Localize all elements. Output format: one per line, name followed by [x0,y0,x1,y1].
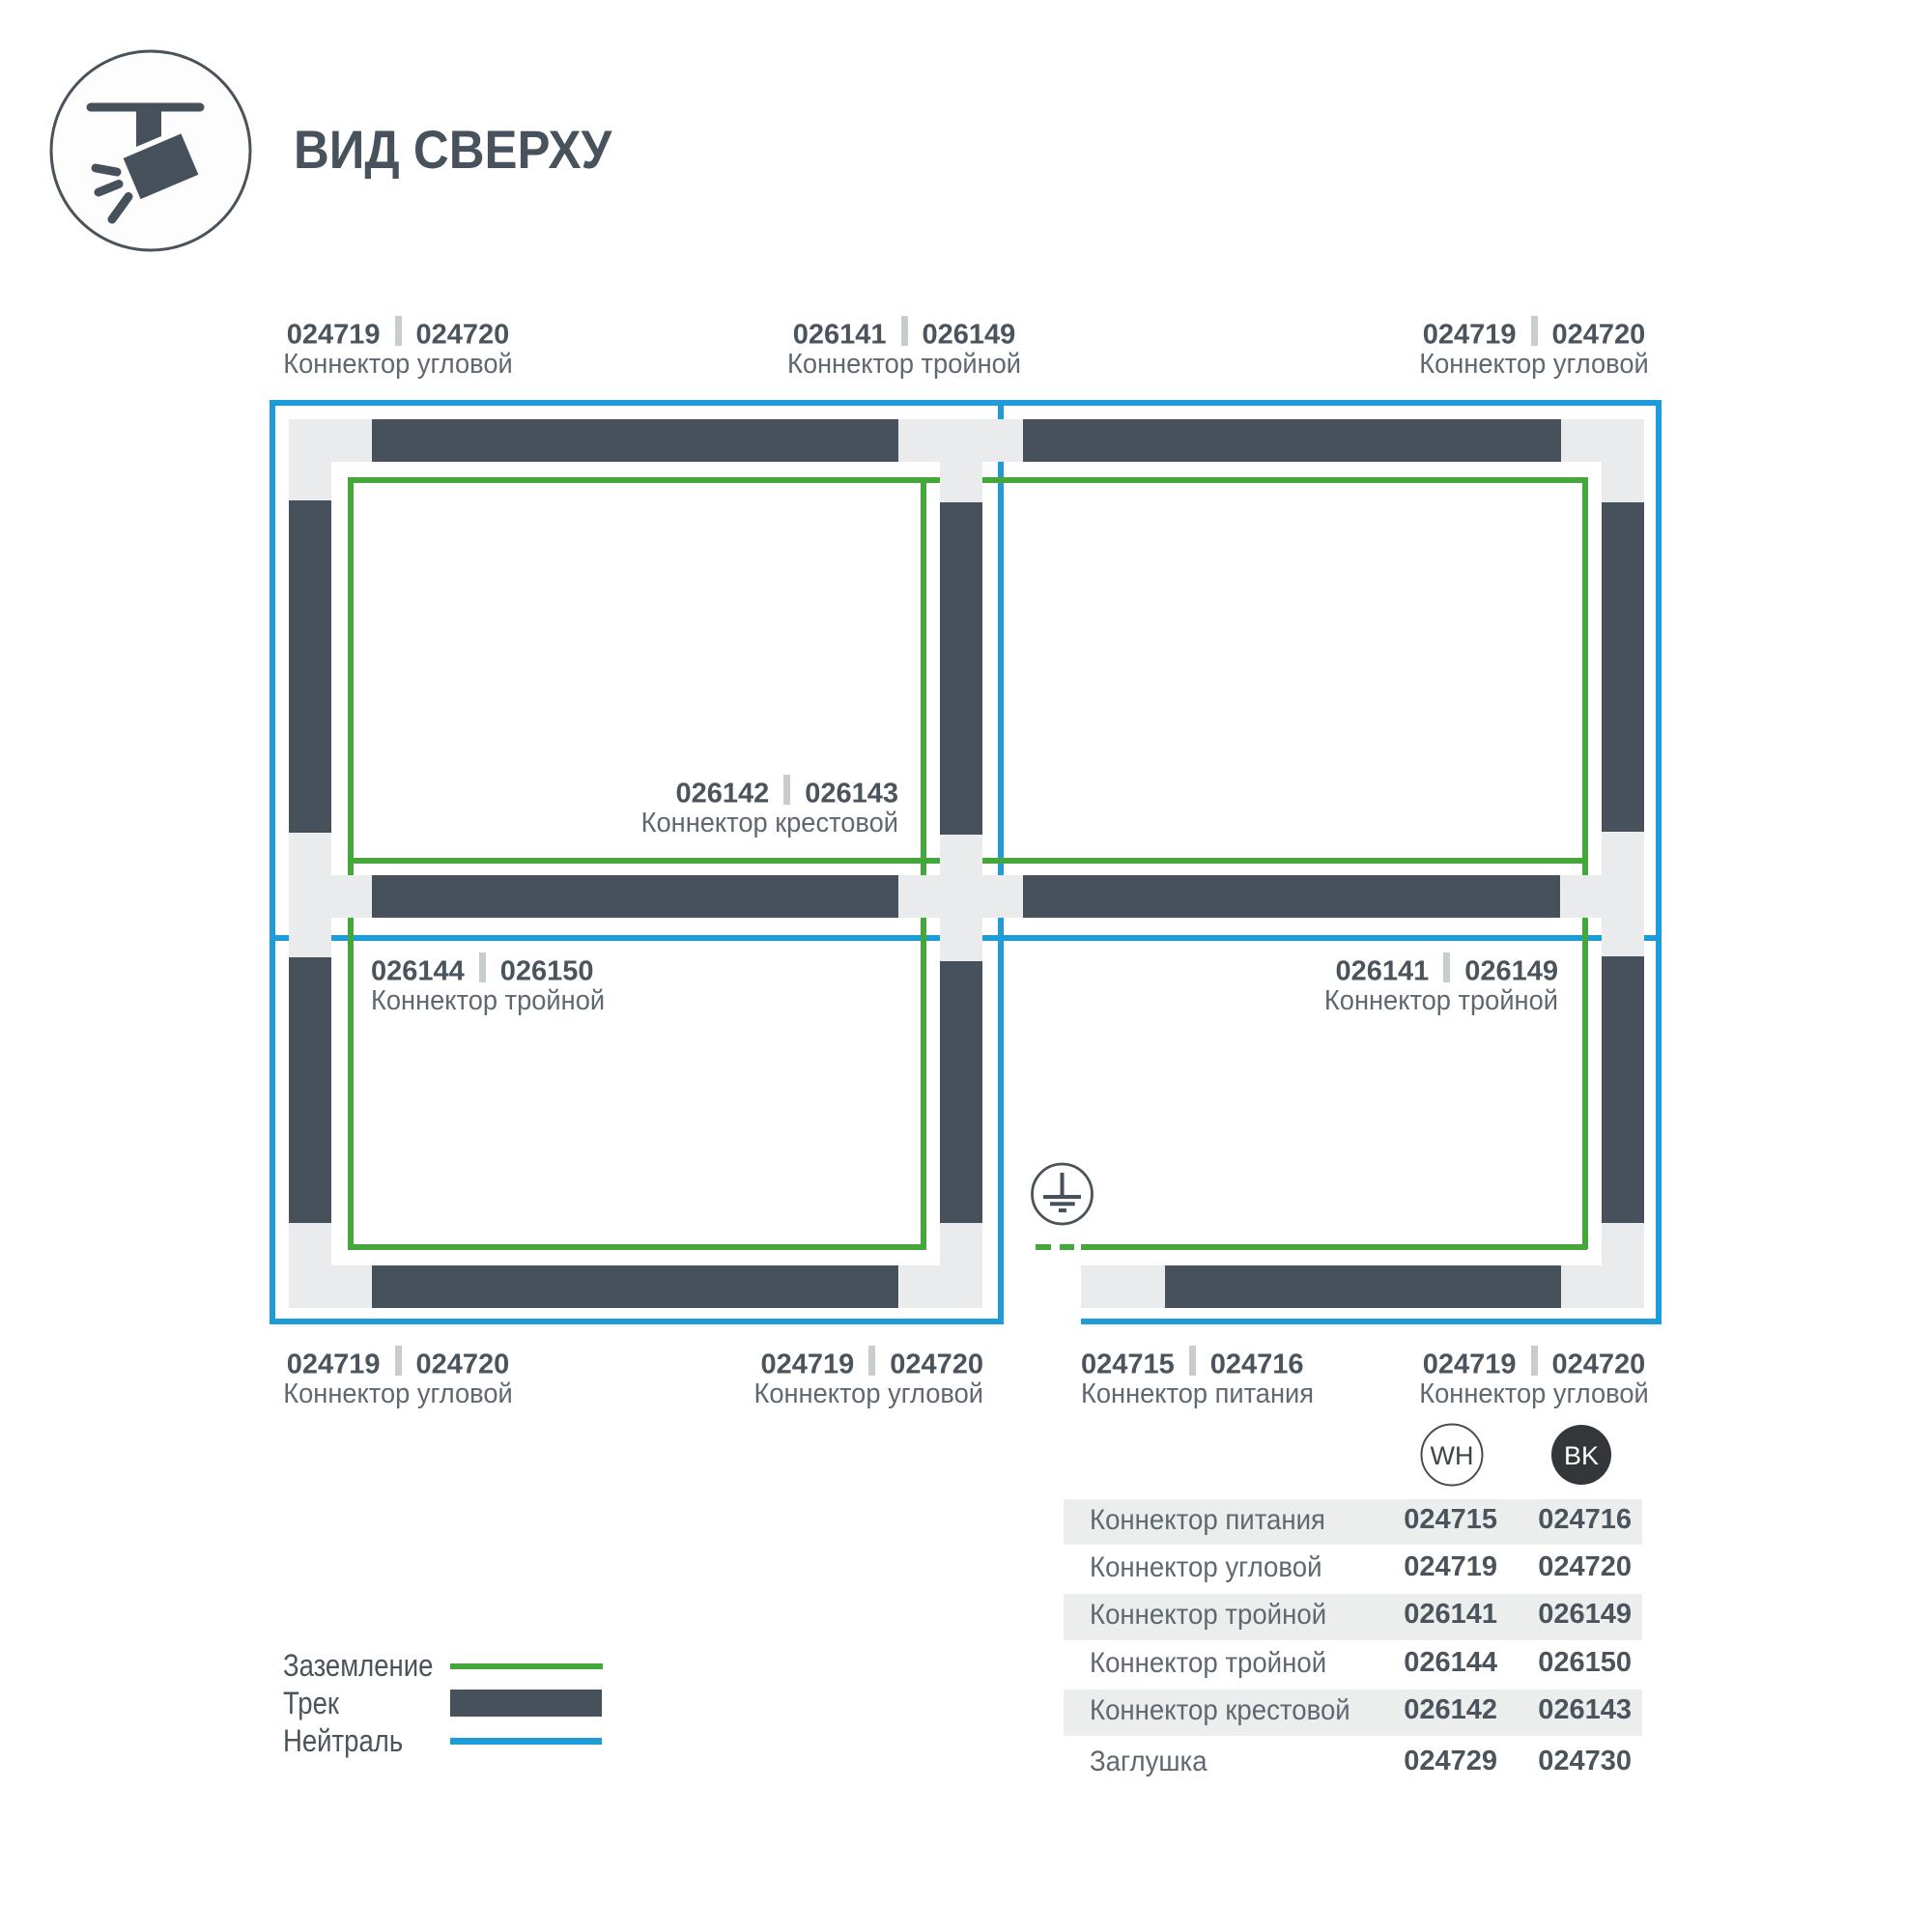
svg-text:BK: BK [1564,1441,1599,1470]
svg-text:WH: WH [1431,1441,1474,1470]
